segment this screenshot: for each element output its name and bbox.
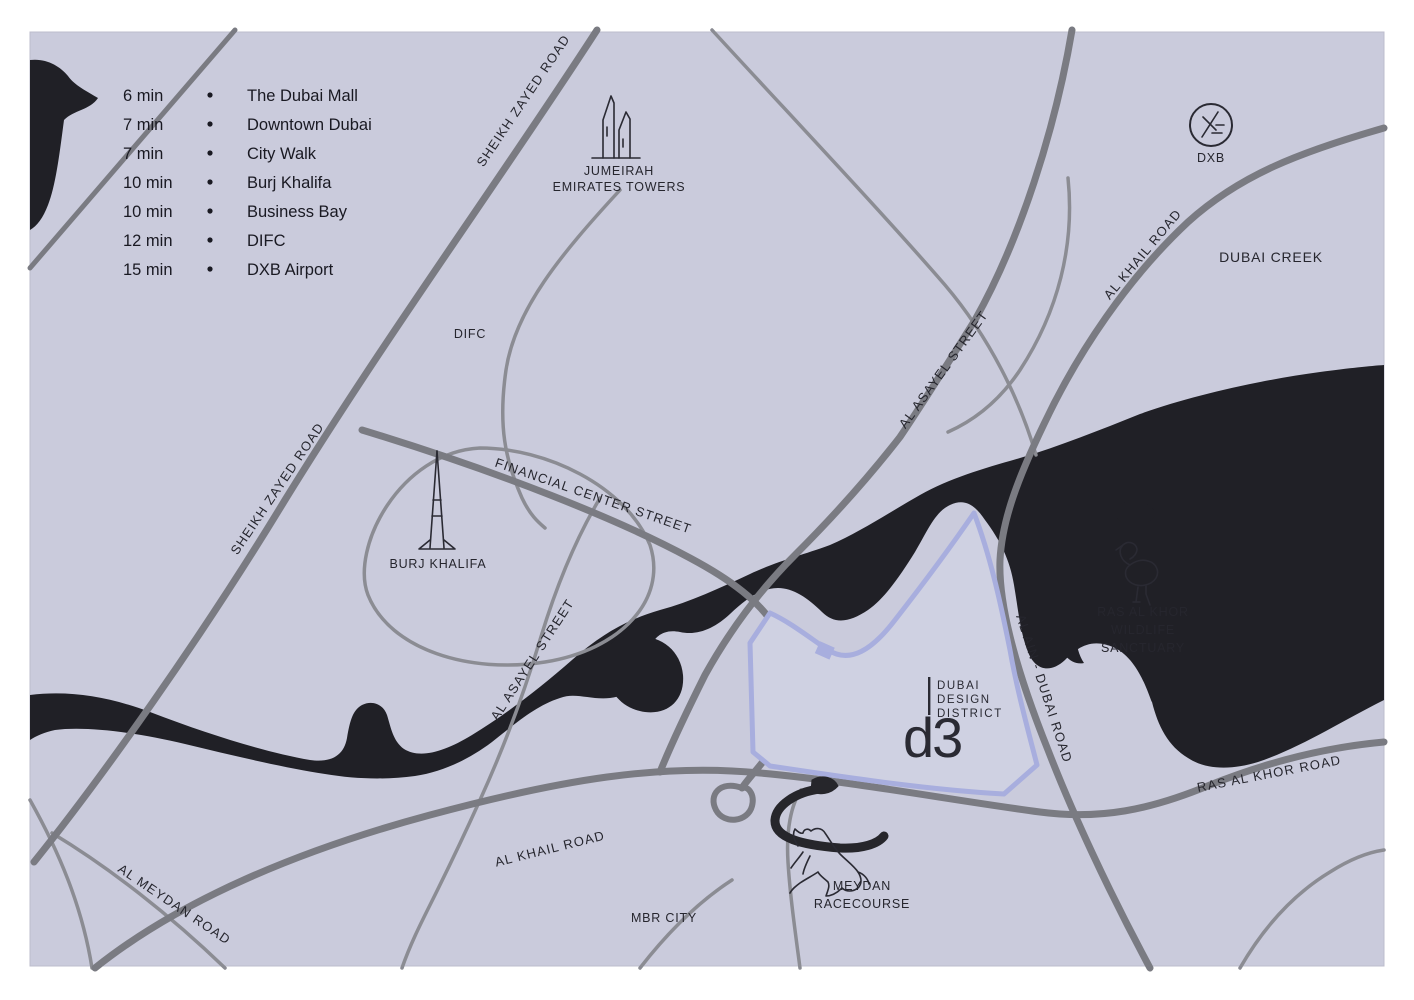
label-jumeirah-line2: EMIRATES TOWERS: [553, 180, 686, 194]
label-sanctuary-line2: WILDLIFE: [1111, 623, 1175, 637]
legend-label: Downtown Dubai: [247, 116, 372, 134]
label-dxb: DXB: [1197, 151, 1225, 165]
legend-bullet: [207, 266, 212, 271]
legend-bullet: [207, 92, 212, 97]
label-meydan-line1: MEYDAN: [833, 879, 891, 893]
legend-label: Business Bay: [247, 203, 348, 221]
legend-label: Burj Khalifa: [247, 174, 332, 192]
label-difc: DIFC: [454, 327, 486, 341]
d3-logo-mark: d3: [903, 706, 961, 769]
legend-row: 7 min Downtown Dubai: [123, 116, 372, 134]
legend-label: DIFC: [247, 232, 286, 250]
legend-time: 10 min: [123, 174, 173, 192]
label-sanctuary-line3: SANCTUARY: [1101, 641, 1185, 655]
legend-bullet: [207, 121, 212, 126]
legend-time: 15 min: [123, 261, 173, 279]
label-dubai-creek: DUBAI CREEK: [1219, 249, 1323, 265]
label-sanctuary-line1: RAS AL KHOR: [1097, 605, 1189, 619]
legend-bullet: [207, 208, 212, 213]
label-burj-khalifa: BURJ KHALIFA: [389, 557, 486, 571]
legend-time: 6 min: [123, 87, 163, 105]
legend-label: The Dubai Mall: [247, 87, 358, 105]
d3-logo-line1: DUBAI: [937, 680, 980, 692]
legend-time: 7 min: [123, 145, 163, 163]
legend-label: City Walk: [247, 145, 317, 163]
label-jumeirah-line1: JUMEIRAH: [584, 164, 654, 178]
legend-time: 12 min: [123, 232, 173, 250]
legend-bullet: [207, 179, 212, 184]
legend-bullet: [207, 150, 212, 155]
dubai-location-map: 6 min The Dubai Mall 7 min Downtown Duba…: [0, 0, 1414, 1000]
d3-logo-line2: DESIGN: [937, 694, 991, 706]
legend-time: 7 min: [123, 116, 163, 134]
label-meydan-line2: RACECOURSE: [814, 897, 910, 911]
map-page: 6 min The Dubai Mall 7 min Downtown Duba…: [0, 0, 1414, 1000]
legend-bullet: [207, 237, 212, 242]
label-mbr-city: MBR CITY: [631, 911, 697, 925]
legend-label: DXB Airport: [247, 261, 334, 279]
legend-time: 10 min: [123, 203, 173, 221]
